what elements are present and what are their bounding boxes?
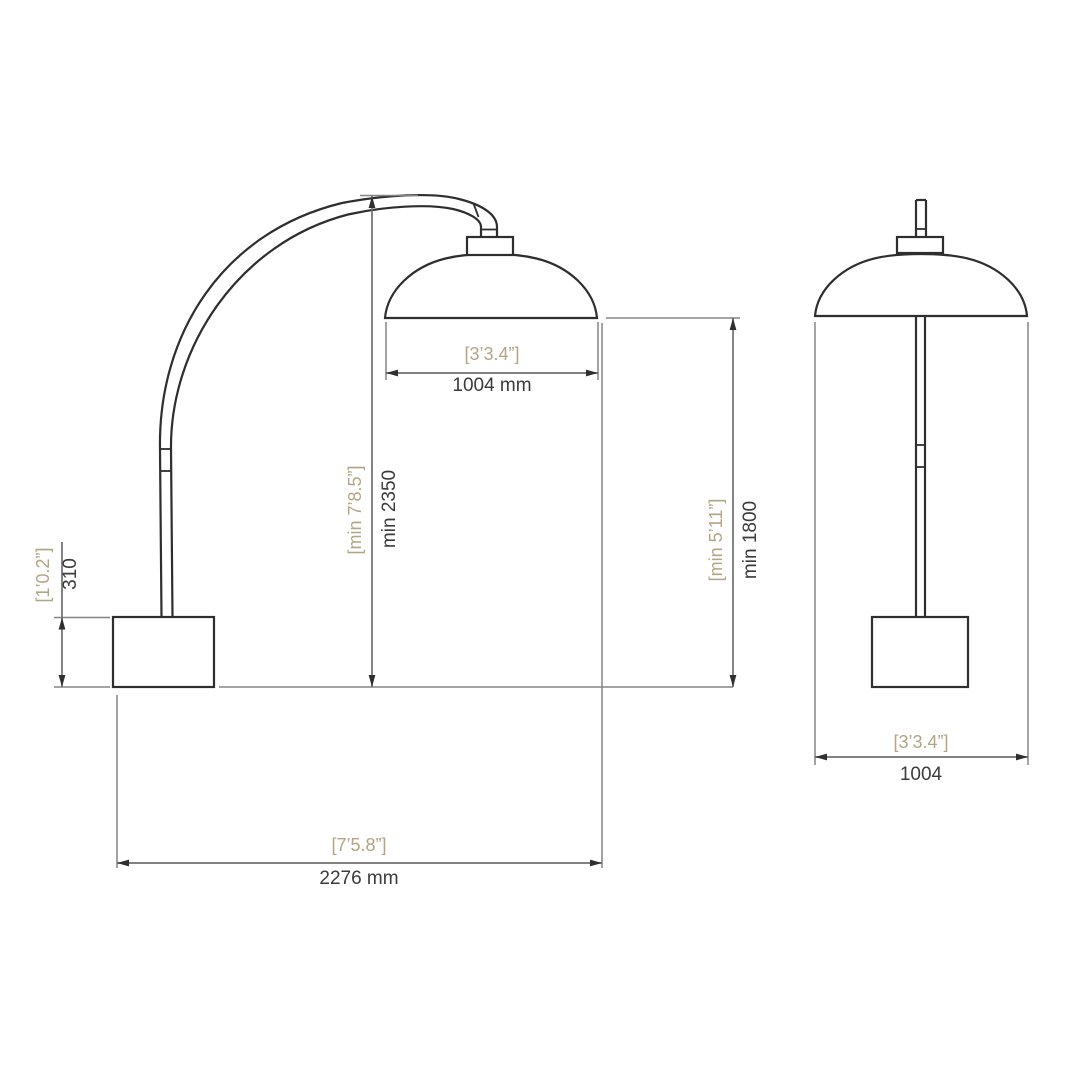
dimension-label-imperial: [3’3.4”] (464, 344, 519, 364)
pole-left-line (160, 449, 162, 617)
dim-side-reach: [7’5.8”] 2276 mm (117, 323, 602, 889)
dimension-label-metric: 2276 mm (319, 868, 398, 889)
arc-arm-inner-line (171, 206, 481, 449)
dimension-label-metric: 1004 (900, 764, 943, 785)
arc-arm-outer-line (160, 195, 497, 449)
shade-dome-front (815, 254, 1027, 316)
lamp-base-side (113, 617, 214, 687)
dimension-label-metric: min 1800 (740, 501, 761, 579)
dimension-label-imperial: [min 5’11”] (706, 499, 726, 582)
dim-side-shade-height: [min 5’11”] min 1800 (606, 318, 761, 687)
dim-side-overall-height: [min 7’8.5”] min 2350 (345, 196, 418, 688)
dimension-label-metric: 310 (60, 558, 81, 590)
dimension-label-imperial: [min 7’8.5”] (345, 465, 365, 554)
dim-side-shade-width: [3’3.4”] 1004 mm (386, 322, 598, 396)
dim-front-shade-width: [3’3.4”] 1004 (815, 322, 1028, 785)
dimension-label-imperial: [7’5.8”] (331, 835, 386, 855)
front-view (815, 200, 1027, 687)
drawing-sheet: [3’3.4”] 1004 mm [min 7’8.5”] min 2350 [… (0, 0, 1080, 1080)
lamp-base-front (872, 617, 968, 687)
side-view (113, 195, 597, 687)
dimension-label-metric: min 2350 (379, 470, 400, 548)
shade-dome-side (385, 254, 597, 318)
shade-cap-side (467, 237, 513, 255)
lamp-dimension-diagram: [3’3.4”] 1004 mm [min 7’8.5”] min 2350 [… (0, 0, 1080, 1080)
dim-side-base-height: [1’0.2”] 310 (33, 542, 110, 687)
pole-right-line (171, 449, 173, 617)
dimension-label-metric: 1004 mm (452, 375, 531, 396)
dimension-label-imperial: [1’0.2”] (33, 547, 53, 602)
shade-cap-front (897, 237, 943, 253)
dimension-label-imperial: [3’3.4”] (893, 732, 948, 752)
